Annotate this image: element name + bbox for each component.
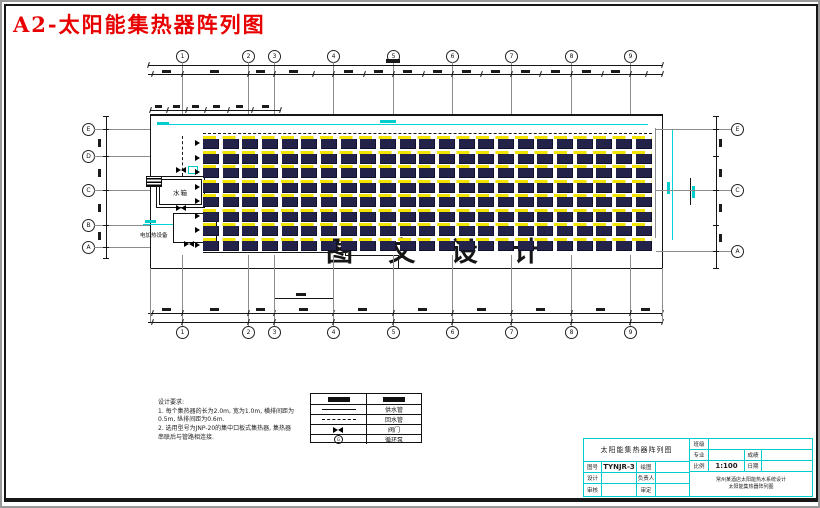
collector-panel: [282, 226, 298, 236]
collector-panel: [341, 226, 357, 236]
collector-panel: [282, 197, 298, 207]
dimension-text: [611, 70, 620, 73]
collector-panel: [242, 212, 258, 222]
pump-icon: G: [334, 435, 343, 444]
collector-panels: [203, 139, 652, 149]
collector-panel: [419, 241, 435, 251]
collector-panel: [439, 154, 455, 164]
cyan-dimension-text: [157, 122, 169, 125]
collector-panel: [203, 197, 219, 207]
dimension-line: [150, 110, 280, 111]
collector-panel: [380, 168, 396, 178]
collector-panel: [223, 183, 239, 193]
flow-arrow: [195, 198, 200, 204]
collector-panel: [360, 226, 376, 236]
dimension-text: [521, 70, 530, 73]
grid-bubble-bottom: 5: [387, 326, 400, 339]
cyan-dimension-line: [163, 124, 648, 125]
collector-panel: [518, 226, 534, 236]
dimension-text: [344, 70, 353, 73]
dimension-text: [582, 70, 591, 73]
collector-panels: [203, 197, 652, 207]
collector-panel: [577, 212, 593, 222]
dimension-tick: [103, 129, 109, 130]
collector-row: [203, 136, 652, 151]
collector-panel: [478, 212, 494, 222]
dimension-text: [98, 232, 101, 240]
collector-panel: [616, 154, 632, 164]
grid-leader-line: [656, 251, 731, 252]
dimension-text: [641, 308, 650, 311]
collector-panel: [380, 154, 396, 164]
grid-bubble-right: C: [731, 184, 744, 197]
collector-panel: [557, 139, 573, 149]
collector-panel: [459, 154, 475, 164]
collector-panel: [301, 139, 317, 149]
collector-panel: [360, 139, 376, 149]
grid-leader-line: [656, 190, 731, 191]
collector-panel: [616, 197, 632, 207]
collector-panel: [262, 226, 278, 236]
collector-panel: [577, 241, 593, 251]
legend-row: [311, 394, 421, 404]
collector-panel: [518, 168, 534, 178]
project-name-cell: 常州某酒店太阳能热水系统设计 太阳能集热器阵列图: [689, 471, 813, 497]
collector-panel: [223, 212, 239, 222]
cyan-dimension-text: [380, 120, 396, 123]
collector-panel: [636, 241, 652, 251]
collector-panel: [400, 241, 416, 251]
collector-panel: [262, 197, 278, 207]
project-line2: 太阳能集热器阵列图: [728, 484, 773, 491]
collector-panel: [203, 168, 219, 178]
electric-heater-label: 电加热设备: [140, 231, 168, 239]
collector-panel: [419, 183, 435, 193]
collector-panel: [439, 183, 455, 193]
dimension-line: [148, 65, 662, 66]
collector-panel: [537, 197, 553, 207]
collector-panel: [557, 241, 573, 251]
dimension-text: [551, 70, 560, 73]
collector-panel: [242, 197, 258, 207]
collector-panels: [203, 241, 652, 251]
collector-panel: [282, 154, 298, 164]
collector-bar-icon: [383, 397, 405, 402]
collector-panel: [459, 139, 475, 149]
flow-arrow: [195, 140, 200, 146]
field-review-label: 审核: [583, 483, 602, 497]
cyan-dimension-line: [672, 130, 673, 240]
collector-panel: [380, 197, 396, 207]
solid-line-icon: [311, 405, 366, 414]
extension-line: [274, 288, 275, 313]
collector-panel: [518, 197, 534, 207]
dimension-tick: [103, 116, 109, 117]
legend-label: 循环泵: [366, 435, 421, 444]
array-boundary-dashed: [203, 133, 652, 134]
collector-row: [203, 151, 652, 166]
dimension-tick: [661, 62, 664, 68]
collector-panel: [321, 226, 337, 236]
collector-panel: [301, 168, 317, 178]
collector-panel: [223, 154, 239, 164]
collector-panel: [400, 183, 416, 193]
notes-block: 设计要求: 1. 每个集热器的长为2.0m, 宽为1.0m, 横排间距为0.5m…: [158, 399, 296, 442]
collector-row: [203, 209, 652, 224]
collector-panel: [616, 168, 632, 178]
collector-panel: [321, 154, 337, 164]
collector-panel: [577, 168, 593, 178]
extension-line: [150, 268, 151, 322]
dimension-line: [148, 74, 662, 75]
collector-panel: [223, 226, 239, 236]
collector-panel: [498, 183, 514, 193]
collector-panel: [616, 226, 632, 236]
collector-panel: [419, 168, 435, 178]
collector-panel: [498, 212, 514, 222]
collector-panel: [459, 168, 475, 178]
collector-panel: [439, 212, 455, 222]
collector-panel: [557, 183, 573, 193]
collector-panel: [360, 183, 376, 193]
collector-panels: [203, 168, 652, 178]
collector-panel: [577, 226, 593, 236]
collector-panel: [321, 168, 337, 178]
grid-bubble-right: A: [731, 245, 744, 258]
collector-panel: [498, 226, 514, 236]
dimension-tick: [713, 251, 719, 252]
legend-label: 阀门: [366, 425, 421, 434]
title-block: 太阳能集热器阵列图 图号 TYNJR-3 绘图 设计 负责人 审核 审定 班级 …: [583, 438, 813, 497]
dimension-tick: [103, 156, 109, 157]
legend-table: 供水管回水管阀门G循环泵: [310, 393, 422, 443]
collector-panel: [459, 241, 475, 251]
collector-panel: [616, 212, 632, 222]
collector-panel: [577, 197, 593, 207]
collector-panels: [203, 226, 652, 236]
building-step-line: [203, 252, 345, 253]
collector-panel: [282, 168, 298, 178]
dimension-tick: [713, 268, 719, 269]
collector-panel: [478, 168, 494, 178]
dimension-text: [596, 308, 605, 311]
titleblock-drawing-title: 太阳能集热器阵列图: [583, 438, 690, 462]
dimension-text: [386, 59, 400, 63]
collector-panel: [498, 154, 514, 164]
dimension-text: [477, 308, 486, 311]
collector-panel: [596, 226, 612, 236]
dimension-text: [256, 308, 265, 311]
collector-panel: [616, 139, 632, 149]
grid-bubble-bottom: 8: [565, 326, 578, 339]
flow-arrow: [195, 213, 200, 219]
collector-panel: [223, 139, 239, 149]
collector-panel: [537, 226, 553, 236]
valve-icon: [181, 167, 186, 173]
dimension-text: [374, 70, 383, 73]
collector-panel: [282, 139, 298, 149]
collector-panel: [537, 154, 553, 164]
dimension-text: [433, 70, 442, 73]
dimension-text: [210, 70, 219, 73]
collector-panel: [518, 154, 534, 164]
cyan-dimension-text: [667, 182, 670, 194]
dimension-text: [162, 308, 171, 311]
collector-panel: [636, 212, 652, 222]
collector-panel: [203, 241, 219, 251]
collector-panel: [380, 241, 396, 251]
dimension-tick: [103, 258, 109, 259]
legend-label: 回水管: [366, 415, 421, 424]
collector-panel: [400, 226, 416, 236]
collector-panel: [478, 139, 494, 149]
collector-panel: [596, 183, 612, 193]
collector-panel: [203, 154, 219, 164]
collector-panel: [596, 154, 612, 164]
collector-panels: [203, 154, 652, 164]
dimension-line: [148, 322, 662, 323]
dimension-text: [173, 105, 180, 108]
collector-panel: [518, 139, 534, 149]
legend-row: G循环泵: [311, 434, 421, 444]
dimension-text: [256, 70, 265, 73]
collector-panel: [636, 183, 652, 193]
collector-panel: [223, 241, 239, 251]
collector-panel: [459, 183, 475, 193]
dimension-text: [98, 204, 101, 212]
collector-panel: [557, 197, 573, 207]
collector-panel: [242, 154, 258, 164]
collector-panel: [341, 168, 357, 178]
collector-panel: [223, 197, 239, 207]
collector-panel: [360, 154, 376, 164]
collector-panels: [203, 212, 652, 222]
note-line: 1. 每个集热器的长为2.0m, 宽为1.0m, 横排间距为0.5m, 纵排间距…: [158, 408, 296, 425]
collector-panel: [341, 139, 357, 149]
collector-panel: [242, 168, 258, 178]
collector-panel: [439, 139, 455, 149]
dimension-line: [716, 116, 717, 268]
dimension-line: [148, 313, 662, 314]
collector-panel: [557, 212, 573, 222]
cyan-dimension-text: [145, 220, 156, 223]
dimension-text: [98, 169, 101, 177]
dimension-text: [719, 139, 722, 147]
collector-panel: [636, 226, 652, 236]
dimension-text: [299, 308, 308, 311]
collector-panel: [242, 139, 258, 149]
collector-panel: [301, 226, 317, 236]
grid-bubble-bottom: 7: [505, 326, 518, 339]
collector-row: [203, 223, 652, 238]
collector-panel: [518, 212, 534, 222]
collector-panel: [203, 226, 219, 236]
collector-panel: [419, 139, 435, 149]
solid-line-icon: [322, 409, 356, 410]
dimension-tick: [103, 190, 109, 191]
cyan-dimension-text: [692, 186, 695, 198]
pump-symbol: [146, 176, 162, 187]
collector-panel: [262, 139, 278, 149]
field-approve-label: 审定: [636, 483, 656, 497]
collector-panel: [459, 197, 475, 207]
collector-panel: [596, 168, 612, 178]
flow-arrow: [195, 169, 200, 175]
flow-arrow: [195, 227, 200, 233]
collector-panel: [616, 183, 632, 193]
dimension-text: [462, 70, 471, 73]
collector-panel: [596, 139, 612, 149]
collector-panel: [400, 154, 416, 164]
dashed-line-icon: [322, 419, 356, 420]
collector-panel: [321, 197, 337, 207]
collector-panel: [203, 183, 219, 193]
collector-panel: [341, 197, 357, 207]
collector-row: [203, 180, 652, 195]
water-tank-label: 水箱: [173, 187, 188, 197]
dimension-text: [155, 105, 162, 108]
collector-panel: [321, 139, 337, 149]
flow-arrow: [195, 184, 200, 190]
collector-panel: [341, 183, 357, 193]
dimension-tick: [713, 156, 719, 157]
dimension-tick: [279, 107, 282, 113]
collector-panel: [478, 183, 494, 193]
collector-panel: [400, 168, 416, 178]
collector-panel: [341, 212, 357, 222]
dimension-text: [289, 70, 298, 73]
collector-panel: [301, 197, 317, 207]
collector-panel: [498, 197, 514, 207]
collector-panel: [518, 241, 534, 251]
collector-panel: [203, 139, 219, 149]
collector-panel: [301, 212, 317, 222]
collector-panel: [518, 183, 534, 193]
collector-panel: [262, 241, 278, 251]
collector-panel: [282, 212, 298, 222]
collector-panel: [498, 168, 514, 178]
collector-panel: [478, 241, 494, 251]
dimension-bracket: [690, 178, 691, 205]
grid-bubble-bottom: 4: [327, 326, 340, 339]
collector-panel: [360, 241, 376, 251]
dimension-text: [418, 308, 427, 311]
collector-bar-icon: [311, 394, 366, 404]
collector-panel: [262, 168, 278, 178]
collector-panel: [360, 168, 376, 178]
collector-panel: [537, 183, 553, 193]
legend-row: 回水管: [311, 414, 421, 424]
collector-panel: [419, 154, 435, 164]
dimension-text: [491, 70, 500, 73]
collector-panel: [636, 197, 652, 207]
collector-panel: [282, 241, 298, 251]
collector-panel: [262, 183, 278, 193]
field-review-value: [601, 483, 637, 497]
valve-icon: [338, 427, 343, 433]
dimension-tick: [713, 129, 719, 130]
collector-panel: [419, 197, 435, 207]
building-left-edge: [150, 114, 151, 268]
legend-row: 供水管: [311, 404, 421, 414]
collector-panel: [557, 226, 573, 236]
collector-panel: [636, 139, 652, 149]
collector-panel: [262, 212, 278, 222]
dimension-text: [210, 308, 219, 311]
field-approve-value: [655, 483, 690, 497]
collector-panel: [439, 168, 455, 178]
collector-panel: [242, 183, 258, 193]
collector-row: [203, 238, 652, 253]
collector-panel: [439, 226, 455, 236]
collector-panel: [478, 226, 494, 236]
collector-panel: [242, 241, 258, 251]
collector-panel: [537, 241, 553, 251]
collector-panel: [577, 183, 593, 193]
flow-arrow: [195, 155, 200, 161]
collector-panel: [557, 154, 573, 164]
building-inner-wall: [655, 128, 656, 238]
collector-panel: [537, 168, 553, 178]
dimension-tick: [103, 225, 109, 226]
grid-bubble-bottom: 2: [242, 326, 255, 339]
collector-panel: [419, 226, 435, 236]
dashed-line-icon: [311, 415, 366, 424]
dimension-text: [719, 204, 722, 212]
grid-bubble-bottom: 6: [446, 326, 459, 339]
collector-panel: [360, 212, 376, 222]
legend-row: 阀门: [311, 424, 421, 434]
legend-label: 供水管: [366, 405, 421, 414]
building-right-edge: [662, 114, 663, 268]
collector-panel: [557, 168, 573, 178]
valve-icon: [181, 205, 186, 211]
collector-panel: [636, 168, 652, 178]
collector-panels: [203, 183, 652, 193]
dimension-line: [106, 116, 107, 258]
dimension-text: [98, 139, 101, 147]
valve-icon: [189, 241, 194, 247]
collector-panel: [478, 197, 494, 207]
collector-panel: [596, 197, 612, 207]
dimension-tick: [713, 190, 719, 191]
collector-panel: [636, 154, 652, 164]
collector-panel: [400, 139, 416, 149]
collector-panel: [459, 212, 475, 222]
collector-panel: [439, 241, 455, 251]
collector-panel: [380, 183, 396, 193]
collector-panel: [400, 197, 416, 207]
dimension-text: [719, 234, 722, 242]
dimension-tick: [103, 247, 109, 248]
collector-panel: [616, 241, 632, 251]
dimension-text: [262, 105, 269, 108]
dimension-text: [403, 70, 412, 73]
grid-bubble-bottom: 9: [624, 326, 637, 339]
project-line1: 常州某酒店太阳能热水系统设计: [716, 477, 786, 484]
collector-panel: [577, 139, 593, 149]
drawing-sheet: A2-太阳能集热器阵列图 水箱 电加热设备 图 文 设: [0, 0, 820, 508]
collector-panel: [301, 154, 317, 164]
collector-panel: [537, 212, 553, 222]
collector-panel: [596, 212, 612, 222]
collector-row: [203, 165, 652, 180]
collector-panel: [341, 154, 357, 164]
collector-panel: [400, 212, 416, 222]
collector-panel: [380, 226, 396, 236]
collector-panel: [360, 197, 376, 207]
dimension-tick: [713, 225, 719, 226]
